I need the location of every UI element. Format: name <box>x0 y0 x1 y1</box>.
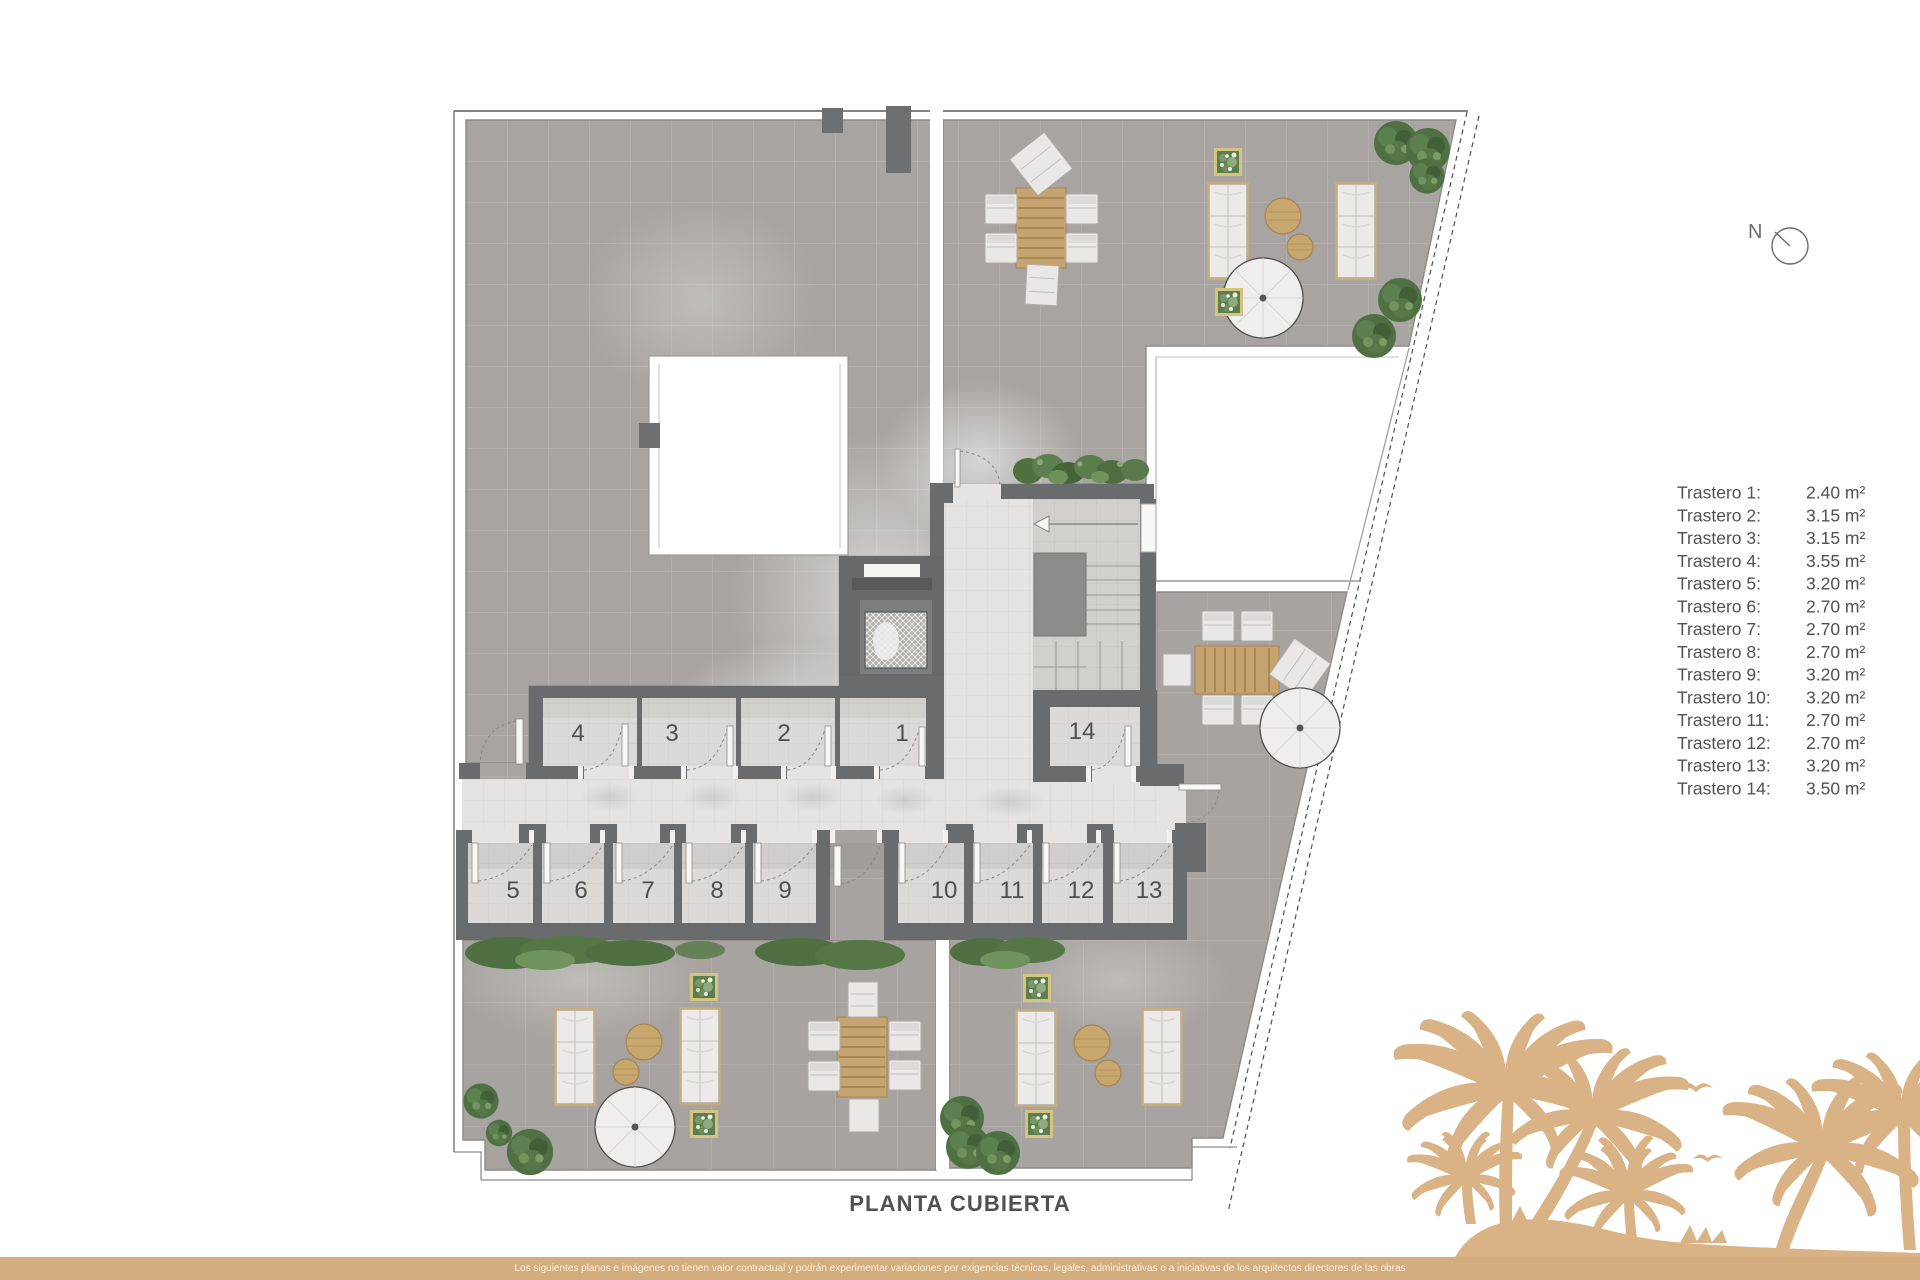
svg-text:2.70 m²: 2.70 m² <box>1806 710 1865 730</box>
svg-text:3.55 m²: 3.55 m² <box>1806 551 1865 571</box>
svg-text:3.15 m²: 3.15 m² <box>1806 528 1865 548</box>
svg-text:Trastero 14:: Trastero 14: <box>1677 779 1771 799</box>
svg-text:Trastero 9:: Trastero 9: <box>1677 665 1761 685</box>
svg-text:3.15 m²: 3.15 m² <box>1806 505 1865 525</box>
svg-text:Trastero 4:: Trastero 4: <box>1677 551 1761 571</box>
svg-text:3.20 m²: 3.20 m² <box>1806 756 1865 776</box>
svg-text:Trastero 3:: Trastero 3: <box>1677 528 1761 548</box>
svg-text:2.70 m²: 2.70 m² <box>1806 596 1865 616</box>
svg-text:Trastero 11:: Trastero 11: <box>1677 710 1769 730</box>
svg-text:Trastero 13:: Trastero 13: <box>1677 756 1771 776</box>
svg-text:8: 8 <box>710 877 723 904</box>
svg-text:Trastero 12:: Trastero 12: <box>1677 733 1771 753</box>
svg-text:1: 1 <box>895 720 908 747</box>
svg-text:13: 13 <box>1136 877 1163 904</box>
svg-text:14: 14 <box>1069 718 1096 745</box>
svg-text:PLANTA CUBIERTA: PLANTA CUBIERTA <box>849 1191 1070 1216</box>
svg-text:6: 6 <box>574 877 587 904</box>
svg-text:3.20 m²: 3.20 m² <box>1806 687 1865 707</box>
svg-text:2: 2 <box>777 720 790 747</box>
svg-text:3.50 m²: 3.50 m² <box>1806 779 1865 799</box>
svg-text:4: 4 <box>571 720 584 747</box>
svg-text:Trastero 7:: Trastero 7: <box>1677 619 1761 639</box>
svg-text:3.20 m²: 3.20 m² <box>1806 574 1865 594</box>
svg-text:9: 9 <box>778 877 791 904</box>
svg-text:Trastero 6:: Trastero 6: <box>1677 596 1761 616</box>
svg-text:N: N <box>1748 221 1762 243</box>
svg-text:7: 7 <box>641 877 654 904</box>
svg-text:12: 12 <box>1068 877 1095 904</box>
svg-text:5: 5 <box>506 877 519 904</box>
svg-text:Trastero 5:: Trastero 5: <box>1677 574 1761 594</box>
svg-text:Trastero 8:: Trastero 8: <box>1677 642 1761 662</box>
svg-text:Trastero 10:: Trastero 10: <box>1677 687 1771 707</box>
svg-text:11: 11 <box>1000 877 1025 904</box>
svg-text:3: 3 <box>665 720 678 747</box>
svg-text:2.70 m²: 2.70 m² <box>1806 619 1865 639</box>
svg-text:Trastero 2:: Trastero 2: <box>1677 505 1761 525</box>
svg-text:Trastero 1:: Trastero 1: <box>1677 483 1761 503</box>
svg-text:2.40 m²: 2.40 m² <box>1806 483 1865 503</box>
svg-text:2.70 m²: 2.70 m² <box>1806 733 1865 753</box>
svg-text:10: 10 <box>931 877 958 904</box>
svg-text:3.20 m²: 3.20 m² <box>1806 665 1865 685</box>
svg-text:2.70 m²: 2.70 m² <box>1806 642 1865 662</box>
svg-text:Los siguientes planos e imágen: Los siguientes planos e imágenes no tien… <box>514 1263 1405 1274</box>
